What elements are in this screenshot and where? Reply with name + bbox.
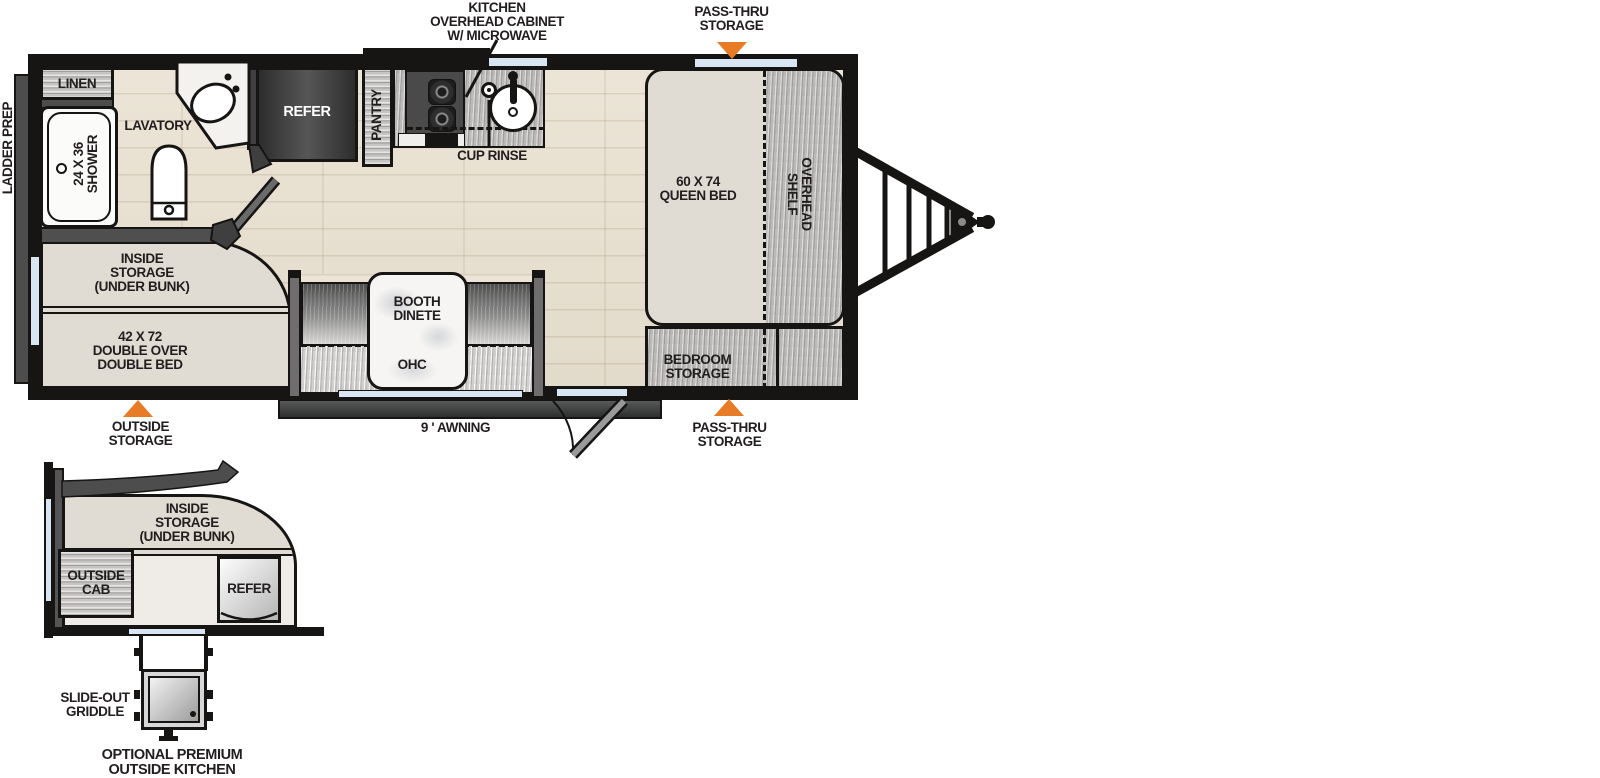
- ok-bottom-window: [128, 628, 206, 635]
- floorplan-page: KITCHEN OVERHEAD CABINET W/ MICROWAVE PA…: [0, 0, 1600, 778]
- bedroom-window: [694, 58, 798, 68]
- double-bed-label: 42 X 72 DOUBLE OVER DOUBLE BED: [74, 330, 206, 372]
- dinette-table: [367, 272, 468, 390]
- inside-storage-label: INSIDE STORAGE (UNDER BUNK): [78, 252, 206, 294]
- overhead-shelf-label: OVERHEAD SHELF: [785, 149, 813, 239]
- outside-kitchen-caption: OPTIONAL PREMIUM OUTSIDE KITCHEN: [88, 748, 256, 778]
- hitch-frame: [853, 150, 995, 294]
- kitchen-window: [488, 57, 548, 67]
- pass-thru-top-indicator-icon: [717, 42, 747, 59]
- slide-out-griddle-label: SLIDE-OUT GRIDDLE: [52, 691, 138, 719]
- ok-inside-storage-label: INSIDE STORAGE (UNDER BUNK): [120, 502, 254, 544]
- pass-thru-top-label: PASS-THRU STORAGE: [694, 5, 769, 33]
- griddle-dot: [190, 711, 196, 717]
- bunk-window: [30, 256, 40, 346]
- queen-bed-label: 60 X 74 QUEEN BED: [648, 175, 748, 203]
- right-wall: [843, 54, 858, 400]
- shower-drain: [56, 163, 67, 174]
- ok-refer-label: REFER: [219, 582, 279, 596]
- ohc-label: OHC: [391, 358, 433, 372]
- bedroom-storage-dashed-line: [763, 329, 766, 389]
- kitchen-sink-drain: [508, 107, 518, 117]
- bathroom-wall: [30, 227, 216, 244]
- bedroom-storage-divider: [776, 329, 779, 389]
- outside-storage-label: OUTSIDE STORAGE: [98, 420, 183, 448]
- pantry-label: PANTRY: [370, 70, 384, 160]
- dinette-bench-left: [301, 282, 372, 346]
- cup-rinse-label: CUP RINSE: [450, 149, 534, 163]
- kitchen-faucet: [510, 78, 517, 104]
- kitchen-faucet-knob: [508, 71, 518, 81]
- kitchen-overhead-cabinet: [363, 48, 490, 70]
- left-wall: [28, 54, 42, 400]
- dinette-slideout: [288, 270, 545, 398]
- pass-thru-bottom-label: PASS-THRU STORAGE: [692, 421, 767, 449]
- ladder-prep-label: LADDER PREP: [1, 88, 15, 208]
- bunk-divider: [42, 306, 288, 314]
- dinette-left-wall: [288, 270, 301, 398]
- dinette-right-wall: [532, 270, 545, 398]
- dinette-window: [338, 390, 523, 398]
- refer-label: REFER: [262, 105, 352, 120]
- dinette-bench-right: [464, 282, 532, 346]
- ok-left-window: [45, 498, 52, 602]
- entry-door-window: [556, 388, 628, 397]
- awning-bar: [278, 399, 662, 419]
- lavatory-label: LAVATORY: [118, 119, 198, 133]
- outside-storage-indicator-icon: [123, 400, 153, 417]
- kitchen-overhead-label: KITCHEN OVERHEAD CABINET W/ MICROWAVE: [417, 1, 577, 43]
- ok-bunk-endcap: [62, 461, 238, 497]
- kitchen-drawer: [425, 134, 458, 146]
- bed-shelf-dashed-line: [763, 71, 766, 326]
- booth-dinette-label: BOOTH DINETE: [384, 295, 450, 323]
- pass-thru-bottom-indicator-icon: [714, 399, 744, 416]
- awning-label: 9 ' AWNING: [403, 421, 508, 435]
- ok-outside-cab-label: OUTSIDE CAB: [60, 569, 132, 597]
- cup-rinse-dot: [487, 88, 491, 92]
- linen-label: LINEN: [45, 77, 109, 91]
- stove-burner-top: [428, 79, 456, 105]
- bedroom-storage-label: BEDROOM STORAGE: [650, 353, 745, 381]
- shower-label: 24 X 36 SHOWER: [72, 124, 100, 204]
